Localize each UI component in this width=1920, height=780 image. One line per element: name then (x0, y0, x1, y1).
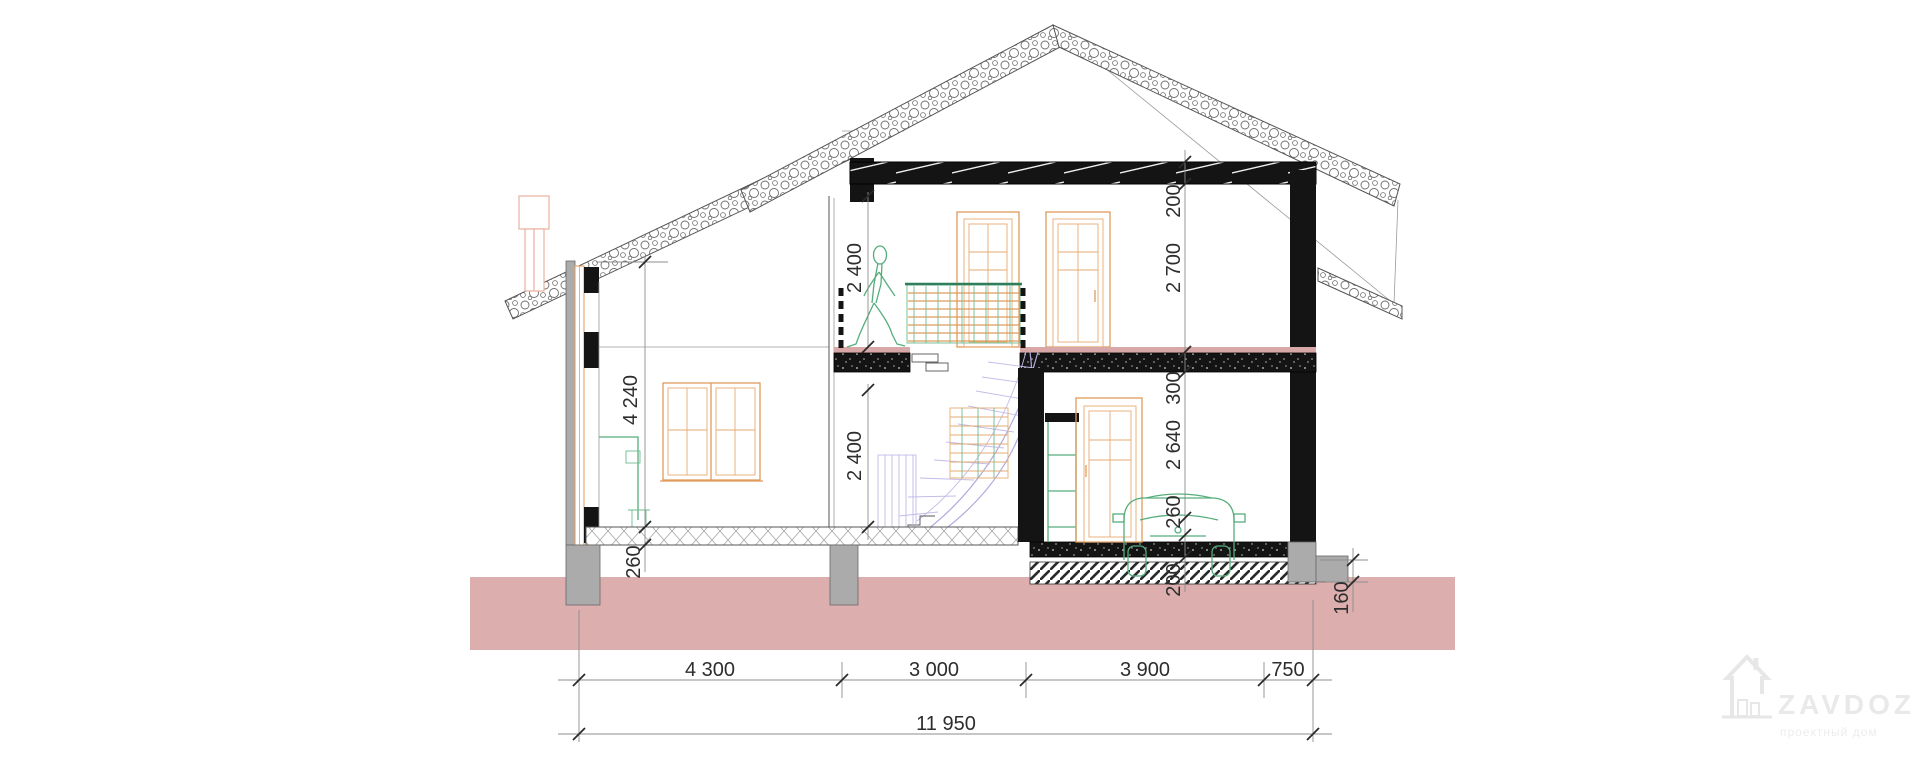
dim-footing-depth: 160 (1331, 581, 1353, 614)
stair-lower-balustrade (878, 455, 916, 535)
dim-span-4: 750 (1271, 659, 1304, 681)
house-cross-section: 4 240 260 2 400 2 400 200 2 700 300 2 64… (0, 0, 1920, 780)
dim-upper-room-height: 2 700 (1163, 243, 1185, 293)
spiral-staircase (878, 352, 1038, 543)
left-wall (566, 261, 599, 545)
chimney (519, 196, 549, 291)
dim-garage-step: 260 (1163, 495, 1185, 528)
dim-lower-clearance: 2 400 (844, 431, 866, 481)
dim-overall-width: 11 950 (916, 713, 976, 735)
watermark: ZAVDOZ проектный дом (1722, 657, 1915, 739)
window (660, 383, 763, 481)
foundation-pier (830, 545, 858, 605)
garage-foundation (1288, 542, 1316, 582)
foundation-pier (566, 545, 600, 605)
ground-fill (470, 577, 1455, 650)
garage-left-wall (1018, 368, 1044, 542)
dim-span-2: 3 000 (909, 659, 959, 681)
dim-span-3: 3 900 (1120, 659, 1170, 681)
radiator-fixture (599, 437, 650, 537)
dim-wall-height: 4 240 (620, 375, 642, 425)
dim-slab-thickness: 300 (1163, 371, 1185, 404)
section-drawing-canvas: 4 240 260 2 400 2 400 200 2 700 300 2 64… (0, 0, 1920, 780)
second-floor-slab (834, 347, 1316, 372)
dim-garage-slab: 200 (1163, 563, 1185, 596)
dim-floor-slab: 260 (623, 545, 645, 578)
dim-roof-edge: 200 (1163, 184, 1185, 217)
dim-garage-height: 2 640 (1163, 420, 1185, 470)
shelf-ladder (1045, 413, 1079, 542)
dim-upper-clearance: 2 400 (844, 243, 866, 293)
porch-roof-band (1318, 268, 1402, 319)
dim-span-1: 4 300 (685, 659, 735, 681)
watermark-tagline: проектный дом (1780, 725, 1878, 739)
house-logo-icon (1722, 657, 1772, 717)
garage-floor-slab (1030, 542, 1292, 557)
ceiling-slab (850, 158, 1316, 202)
watermark-brand: ZAVDOZ (1778, 689, 1915, 720)
upper-door-right (1046, 212, 1110, 347)
garage-door (1076, 398, 1142, 542)
